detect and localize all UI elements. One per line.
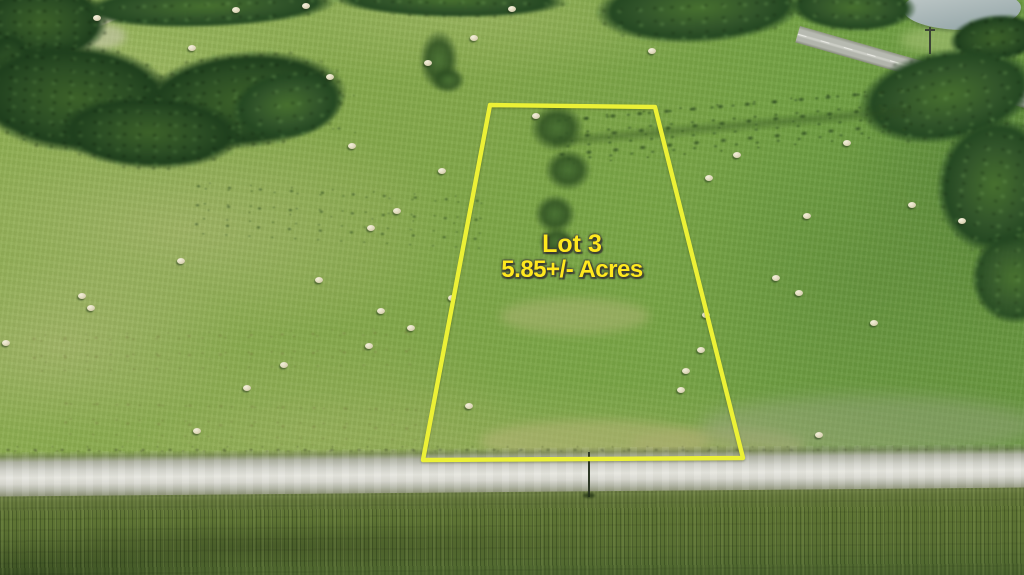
boundary-overlay (0, 0, 1024, 575)
acreage-label: 5.85+/- Acres (440, 257, 704, 283)
lot-number-label: Lot 3 (440, 231, 704, 257)
aerial-photo: Lot 3 5.85+/- Acres (0, 0, 1024, 575)
lot-annotation: Lot 3 5.85+/- Acres (440, 231, 704, 283)
